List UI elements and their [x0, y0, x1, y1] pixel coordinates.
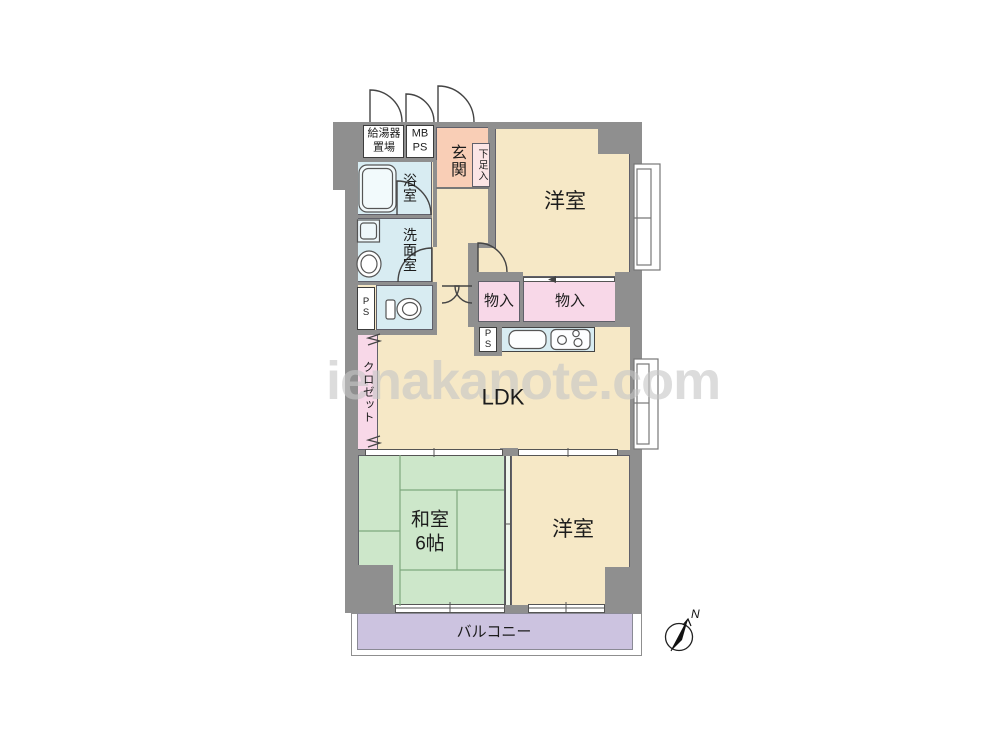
wall [357, 282, 437, 285]
window [528, 604, 605, 613]
entrance-door-arc [438, 86, 474, 122]
japanese-room-label: 和室 6帖 [411, 508, 449, 556]
genkan-step [436, 187, 489, 189]
washroom-area [357, 218, 432, 282]
wall [436, 122, 495, 127]
entrance-label: 玄関 [448, 144, 464, 178]
wall [468, 248, 478, 322]
wall [433, 160, 437, 247]
sliding-door [365, 449, 503, 456]
wall [468, 272, 523, 281]
bathroom-area [357, 160, 432, 215]
sliding-door [523, 277, 615, 282]
wall [615, 272, 630, 322]
meter-door-arc [406, 94, 434, 122]
wall [345, 330, 437, 335]
meter-pipe-space-label: MB PS [412, 127, 429, 155]
wall [433, 282, 437, 335]
compass: N [655, 606, 711, 662]
western-room-bottom-label: 洋室 [552, 517, 594, 543]
floor-plan: N ienakanote.com 給湯器 置場 MB PS 玄関 下足入 洋室 … [0, 0, 1000, 750]
washroom-label: 洗面室 [403, 228, 417, 273]
water-heater-door-arc [370, 90, 402, 122]
balcony-label: バルコニー [457, 624, 532, 643]
living-label: LDK [482, 383, 525, 411]
wall [520, 281, 523, 322]
bathroom-label: 浴室 [403, 173, 417, 203]
storage-left-label: 物入 [484, 293, 514, 312]
wall [357, 215, 432, 218]
toilet-ps-label: P S [363, 297, 369, 319]
window [395, 604, 505, 613]
kitchen-ps-label: P S [485, 329, 491, 351]
compass-north-label: N [691, 607, 700, 621]
shoe-box-label: 下足入 [476, 149, 486, 182]
western-room-top-label: 洋室 [544, 189, 586, 215]
water-heater-label: 給湯器 置場 [368, 127, 401, 155]
storage-right-label: 物入 [555, 293, 585, 312]
sliding-door [518, 449, 618, 456]
kitchen-counter [500, 327, 595, 352]
closet-label: クロゼット [361, 361, 373, 424]
toilet-area [376, 285, 433, 330]
